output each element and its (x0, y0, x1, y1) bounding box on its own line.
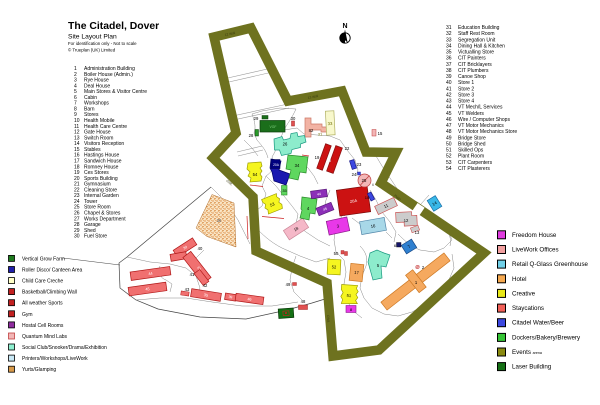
svg-text:CIT Plumbers: CIT Plumbers (458, 68, 489, 74)
svg-text:© Trueplan (UK) Limited: © Trueplan (UK) Limited (68, 48, 116, 53)
svg-text:Social Club/Snooker/Drama/Exhi: Social Club/Snooker/Drama/Exhibition (22, 345, 107, 351)
svg-text:40: 40 (198, 246, 203, 251)
svg-text:43: 43 (185, 287, 190, 292)
svg-text:CIT Bricklayers: CIT Bricklayers (458, 62, 492, 68)
svg-text:28: 28 (249, 133, 254, 138)
svg-text:45: 45 (145, 287, 150, 292)
svg-text:50: 50 (334, 251, 339, 256)
svg-text:24: 24 (352, 172, 357, 177)
svg-text:35: 35 (282, 189, 286, 193)
svg-text:82: 82 (309, 128, 314, 133)
svg-text:Skilled Ops: Skilled Ops (458, 148, 484, 154)
svg-text:Printers/Workshops/LiveWork: Printers/Workshops/LiveWork (22, 356, 88, 362)
svg-text:49: 49 (286, 282, 291, 287)
svg-text:10: 10 (365, 195, 370, 200)
svg-text:42: 42 (446, 92, 452, 98)
svg-text:CIT Plasterers: CIT Plasterers (458, 166, 490, 172)
svg-text:VT Mech/L Services: VT Mech/L Services (458, 105, 503, 111)
svg-text:53: 53 (446, 160, 452, 166)
svg-text:44: 44 (148, 272, 153, 277)
svg-text:19: 19 (315, 155, 320, 160)
svg-text:22: 22 (345, 146, 350, 151)
svg-text:48: 48 (446, 129, 452, 135)
svg-text:49: 49 (446, 135, 452, 141)
svg-text:48: 48 (301, 299, 306, 304)
svg-text:51: 51 (446, 148, 452, 154)
svg-text:LiveWork Offices: LiveWork Offices (512, 247, 559, 254)
svg-text:45: 45 (446, 111, 452, 117)
svg-text:Basketball/Climbing Wall: Basketball/Climbing Wall (22, 290, 77, 296)
svg-text:CIT Carpenters: CIT Carpenters (458, 160, 493, 166)
svg-text:Plant Room: Plant Room (458, 154, 484, 160)
svg-text:Retail Q-Glass Greenhouse: Retail Q-Glass Greenhouse (512, 261, 589, 268)
svg-text:52: 52 (446, 154, 452, 160)
svg-text:CWB: CWB (326, 315, 330, 323)
svg-text:Store 2: Store 2 (458, 86, 474, 92)
svg-text:29: 29 (254, 116, 259, 121)
svg-text:35: 35 (446, 50, 452, 56)
svg-text:39: 39 (228, 295, 232, 300)
svg-text:Store 4: Store 4 (458, 99, 474, 105)
svg-text:Victualling Store: Victualling Store (458, 50, 494, 56)
svg-text:26: 26 (283, 142, 288, 147)
svg-text:Yurts/Glamping: Yurts/Glamping (22, 367, 56, 373)
svg-text:36: 36 (217, 218, 222, 223)
svg-text:44: 44 (317, 192, 322, 197)
svg-text:For identification only - Not: For identification only - Not to scale (68, 41, 137, 46)
svg-text:54: 54 (253, 172, 258, 177)
svg-text:Fuel Store: Fuel Store (84, 234, 107, 240)
svg-text:39: 39 (446, 74, 452, 80)
svg-text:Hostal Cell Rooms: Hostal Cell Rooms (22, 323, 64, 329)
svg-text:Quantum Mind Labs: Quantum Mind Labs (22, 334, 68, 340)
svg-text:Creative: Creative (512, 290, 536, 297)
svg-text:Wire / Computer Shops: Wire / Computer Shops (458, 117, 510, 123)
svg-text:41: 41 (190, 272, 195, 277)
svg-text:37: 37 (446, 62, 452, 68)
svg-text:Roller Disco/ Canteen Area: Roller Disco/ Canteen Area (22, 268, 83, 274)
svg-text:Bridge Store: Bridge Store (458, 135, 486, 141)
svg-text:47: 47 (446, 123, 452, 129)
svg-text:All weather Sports: All weather Sports (22, 301, 63, 307)
svg-text:34: 34 (295, 163, 300, 168)
svg-text:35: 35 (204, 293, 209, 298)
svg-text:Education Building: Education Building (458, 25, 500, 31)
svg-text:31: 31 (318, 132, 323, 137)
svg-text:46: 46 (446, 117, 452, 123)
svg-text:44: 44 (446, 105, 452, 111)
svg-text:VT Motor Mechanics: VT Motor Mechanics (458, 123, 504, 129)
svg-text:Canoe Shop: Canoe Shop (458, 74, 486, 80)
svg-text:34: 34 (446, 43, 452, 49)
svg-text:The Citadel, Dover: The Citadel, Dover (68, 21, 159, 32)
svg-text:41: 41 (446, 86, 452, 92)
svg-text:Gym: Gym (22, 312, 33, 318)
svg-text:Child Care Creche: Child Care Creche (22, 279, 63, 285)
svg-text:Site Layout Plan: Site Layout Plan (68, 34, 117, 41)
svg-text:25: 25 (362, 178, 367, 183)
svg-text:VT Welders: VT Welders (458, 111, 484, 117)
svg-text:Store 1: Store 1 (458, 80, 474, 86)
svg-text:33: 33 (446, 37, 452, 43)
svg-text:Store 3: Store 3 (458, 92, 474, 98)
svg-text:32: 32 (446, 31, 452, 37)
svg-text:Freedom House: Freedom House (512, 232, 557, 239)
svg-text:42: 42 (203, 283, 208, 288)
svg-text:Dockers/Bakery/Brewery: Dockers/Bakery/Brewery (512, 334, 581, 341)
svg-text:Dining Hall & Kitchen: Dining Hall & Kitchen (458, 43, 505, 49)
svg-text:13: 13 (415, 230, 420, 235)
svg-text:20A: 20A (350, 198, 358, 204)
svg-text:Segregation Unit: Segregation Unit (458, 37, 496, 43)
svg-text:Staff Rest Room: Staff Rest Room (458, 31, 495, 37)
svg-text:30: 30 (74, 234, 80, 240)
svg-text:Vertical Grow Farm: Vertical Grow Farm (22, 256, 65, 262)
svg-text:VT Motor Mechanics Store: VT Motor Mechanics Store (458, 129, 517, 135)
svg-text:Laser Building: Laser Building (512, 364, 552, 371)
svg-text:20A: 20A (273, 163, 280, 167)
svg-text:38: 38 (446, 68, 452, 74)
svg-text:43: 43 (446, 99, 452, 105)
svg-text:23: 23 (357, 162, 362, 167)
svg-text:50: 50 (446, 142, 452, 148)
svg-text:Hotel: Hotel (512, 276, 526, 283)
svg-text:55: 55 (327, 159, 331, 163)
svg-text:54: 54 (446, 166, 452, 172)
svg-text:46: 46 (247, 297, 252, 302)
svg-text:CIT Painters: CIT Painters (458, 56, 486, 62)
svg-text:Citadel Water/Beer: Citadel Water/Beer (512, 320, 564, 327)
svg-text:Bridge Shed: Bridge Shed (458, 142, 486, 148)
svg-text:Events arena: Events arena (512, 349, 542, 356)
svg-text:15: 15 (378, 131, 383, 136)
svg-text:N: N (342, 23, 347, 30)
svg-text:VGF: VGF (270, 125, 277, 129)
svg-text:Staycations: Staycations (512, 305, 544, 312)
svg-text:30: 30 (291, 116, 296, 121)
svg-text:40: 40 (446, 80, 452, 86)
svg-text:6: 6 (372, 183, 374, 187)
svg-text:36: 36 (446, 56, 452, 62)
svg-text:31: 31 (446, 25, 452, 31)
